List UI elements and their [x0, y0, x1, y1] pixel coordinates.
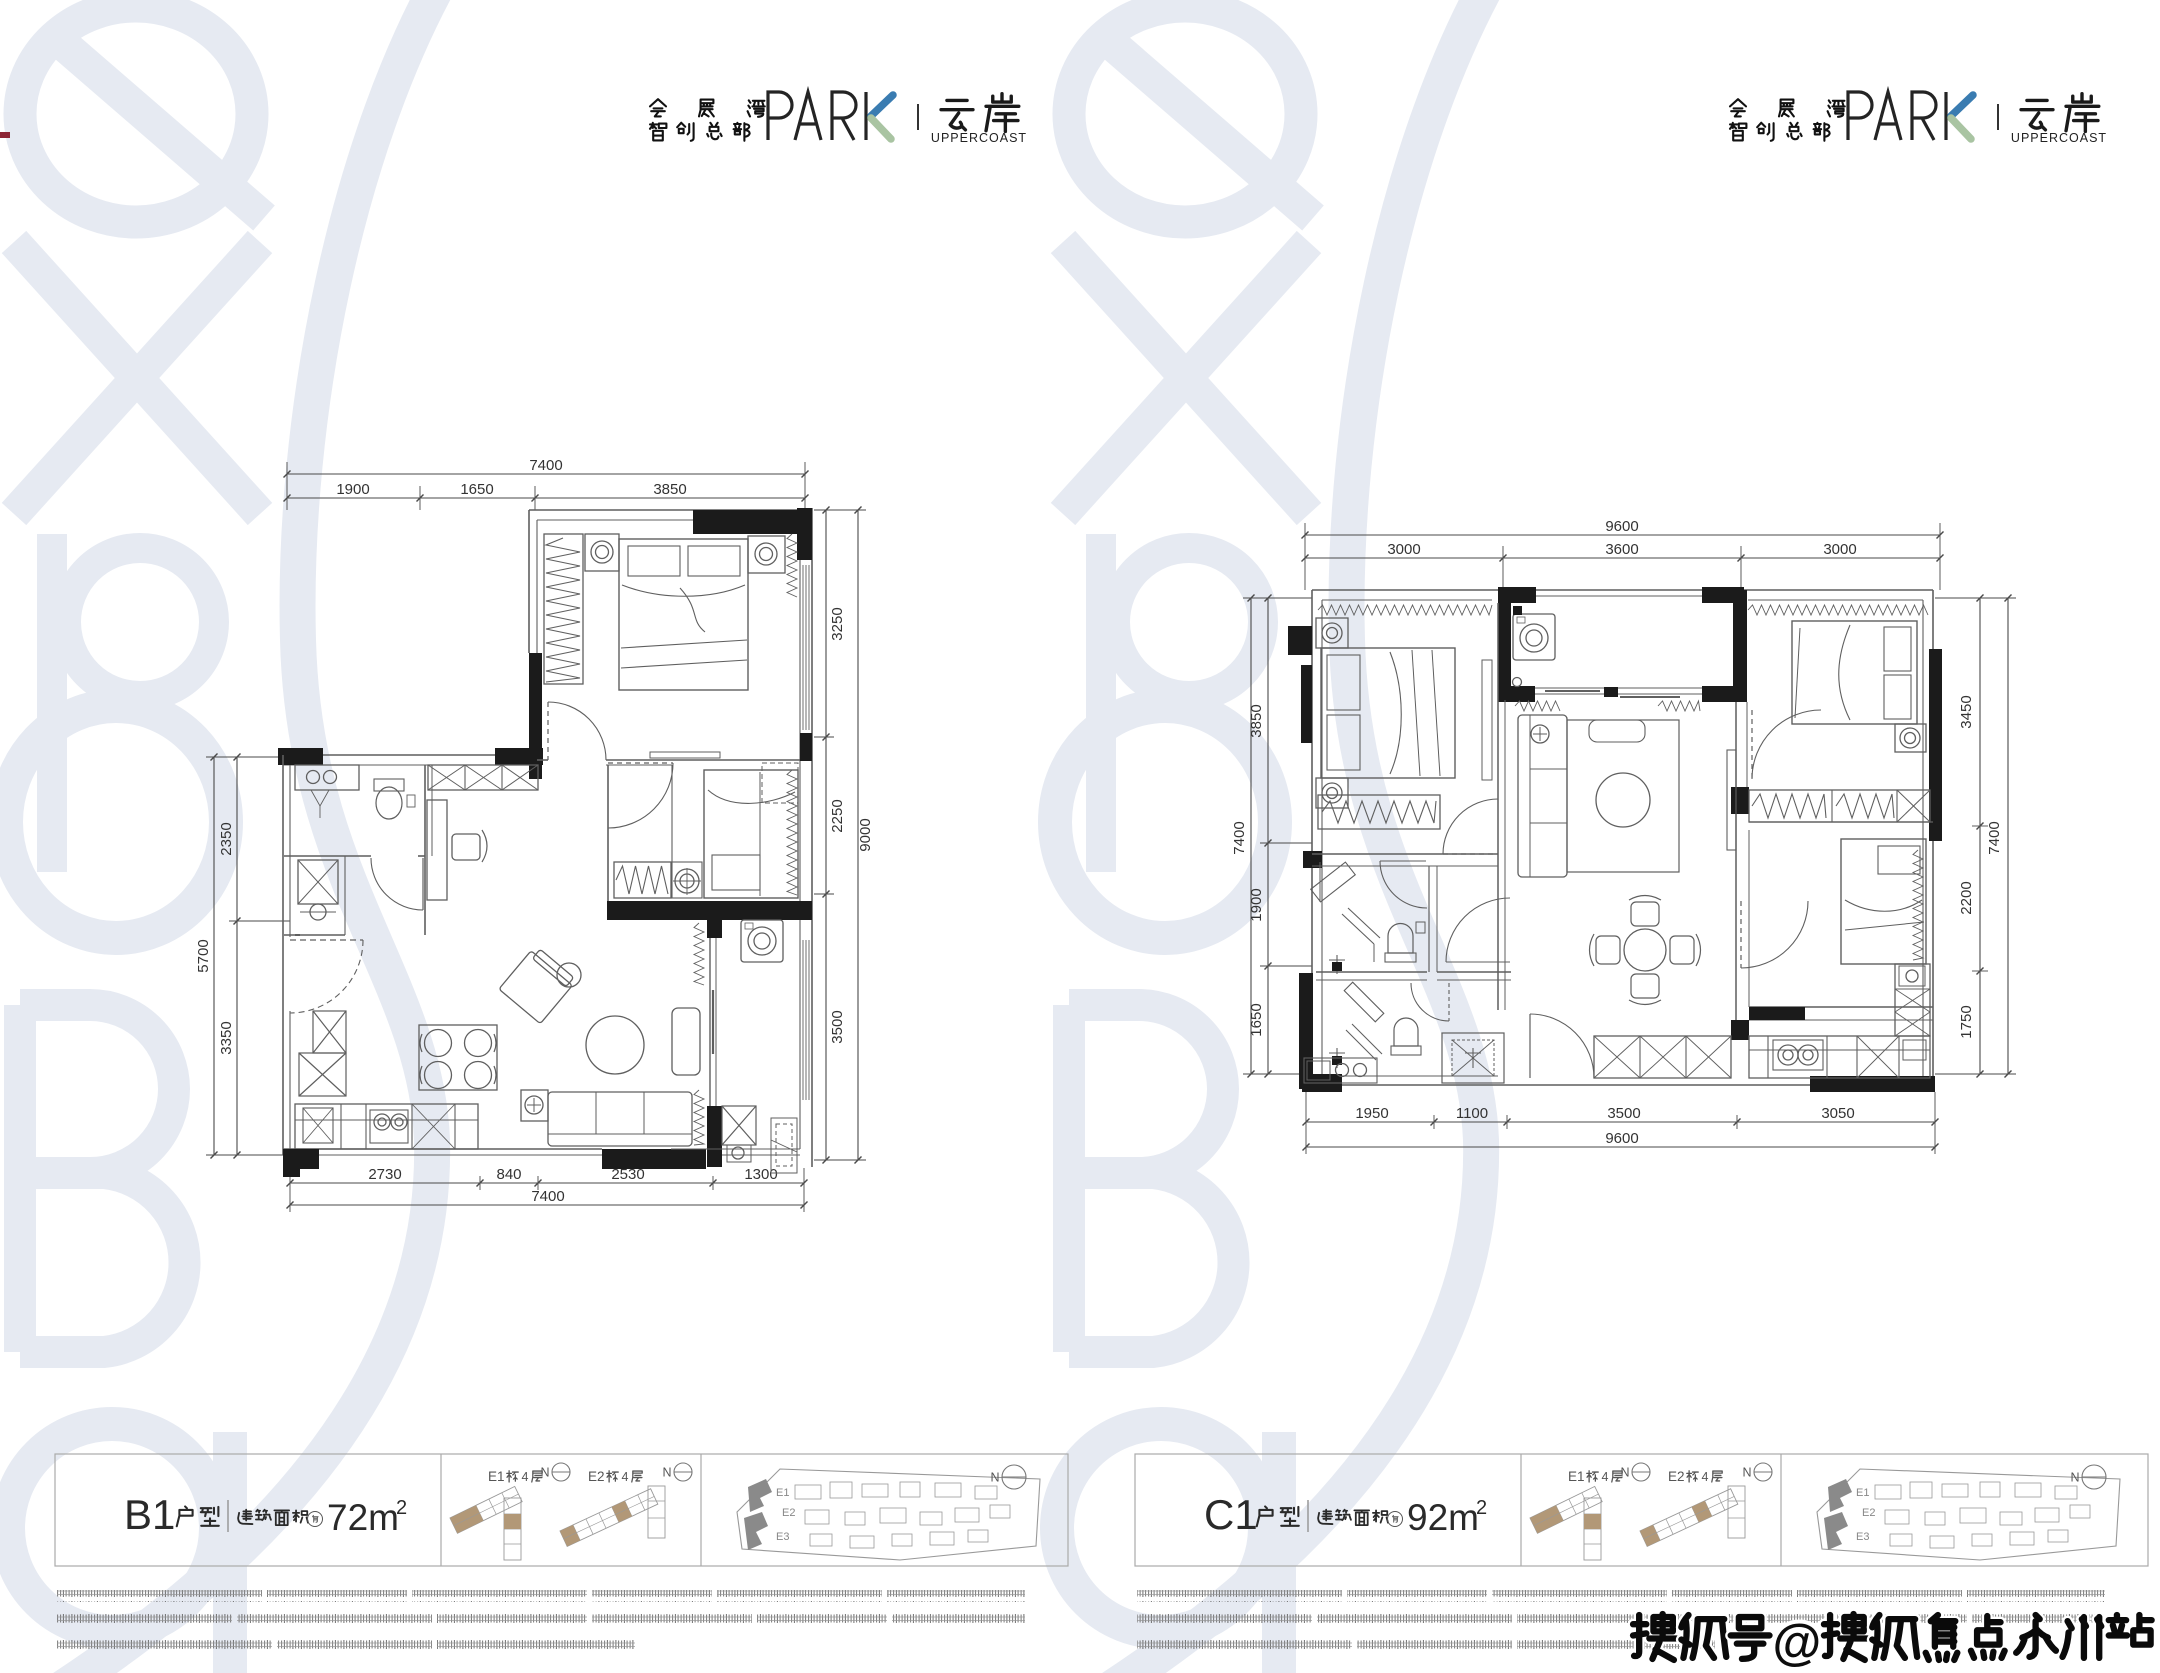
svg-text:4: 4: [1602, 1470, 1609, 1484]
svg-text:72m: 72m: [327, 1497, 399, 1538]
svg-text:E2: E2: [1668, 1469, 1685, 1484]
svg-text:@: @: [1773, 1614, 1822, 1670]
svg-text:7400: 7400: [531, 1188, 564, 1205]
svg-text:2: 2: [396, 1497, 407, 1519]
svg-text:2: 2: [1476, 1497, 1487, 1519]
svg-text:3450: 3450: [1958, 695, 1975, 728]
svg-text:3500: 3500: [1607, 1105, 1640, 1122]
svg-text:1900: 1900: [336, 481, 369, 498]
svg-text:7400: 7400: [529, 457, 562, 474]
svg-text:E3: E3: [776, 1531, 789, 1543]
svg-text:C1: C1: [1204, 1491, 1258, 1538]
svg-text:N: N: [662, 1466, 671, 1480]
svg-text:9600: 9600: [1605, 518, 1638, 535]
svg-text:1650: 1650: [460, 481, 493, 498]
svg-text:3600: 3600: [1605, 541, 1638, 558]
svg-text:840: 840: [496, 1166, 521, 1183]
svg-text:E1: E1: [1856, 1487, 1869, 1499]
svg-text:1300: 1300: [744, 1166, 777, 1183]
svg-text:2350: 2350: [218, 822, 235, 855]
svg-text:E1: E1: [1568, 1469, 1585, 1484]
svg-text:N: N: [1620, 1466, 1629, 1480]
svg-text:7400: 7400: [1986, 821, 2003, 854]
svg-text:3000: 3000: [1387, 541, 1420, 558]
svg-text:3250: 3250: [829, 607, 846, 640]
svg-text:E1: E1: [488, 1469, 505, 1484]
svg-text:N: N: [1742, 1466, 1751, 1480]
svg-text:4: 4: [622, 1470, 629, 1484]
svg-text:E3: E3: [1856, 1531, 1869, 1543]
svg-text:2730: 2730: [368, 1166, 401, 1183]
svg-text:E1: E1: [776, 1487, 789, 1499]
svg-text:92m: 92m: [1407, 1497, 1479, 1538]
svg-text:1900: 1900: [1248, 888, 1265, 921]
svg-text:N: N: [540, 1466, 549, 1480]
svg-text:9600: 9600: [1605, 1130, 1638, 1147]
svg-text:1650: 1650: [1248, 1003, 1265, 1036]
svg-text:7400: 7400: [1231, 821, 1248, 854]
svg-text:2250: 2250: [829, 799, 846, 832]
svg-text:B1: B1: [124, 1491, 175, 1538]
svg-text:3050: 3050: [1821, 1105, 1854, 1122]
svg-text:UPPERCOAST: UPPERCOAST: [2011, 131, 2107, 145]
svg-text:3850: 3850: [1248, 704, 1265, 737]
svg-text:4: 4: [522, 1470, 529, 1484]
svg-text:3000: 3000: [1823, 541, 1856, 558]
svg-text:E2: E2: [1862, 1507, 1875, 1519]
svg-text:3850: 3850: [653, 481, 686, 498]
svg-text:1100: 1100: [1456, 1105, 1488, 1122]
svg-text:UPPERCOAST: UPPERCOAST: [931, 131, 1027, 145]
svg-text:3500: 3500: [829, 1010, 846, 1043]
svg-text:4: 4: [1702, 1470, 1709, 1484]
svg-text:E2: E2: [782, 1507, 795, 1519]
svg-text:1750: 1750: [1958, 1005, 1975, 1038]
svg-text:5700: 5700: [195, 939, 212, 972]
svg-text:3350: 3350: [218, 1021, 235, 1054]
svg-text:1950: 1950: [1355, 1105, 1388, 1122]
svg-text:E2: E2: [588, 1469, 605, 1484]
svg-text:N: N: [2070, 1471, 2079, 1485]
svg-text:9000: 9000: [857, 818, 874, 851]
svg-text:2200: 2200: [1958, 881, 1975, 914]
svg-text:N: N: [990, 1471, 999, 1485]
